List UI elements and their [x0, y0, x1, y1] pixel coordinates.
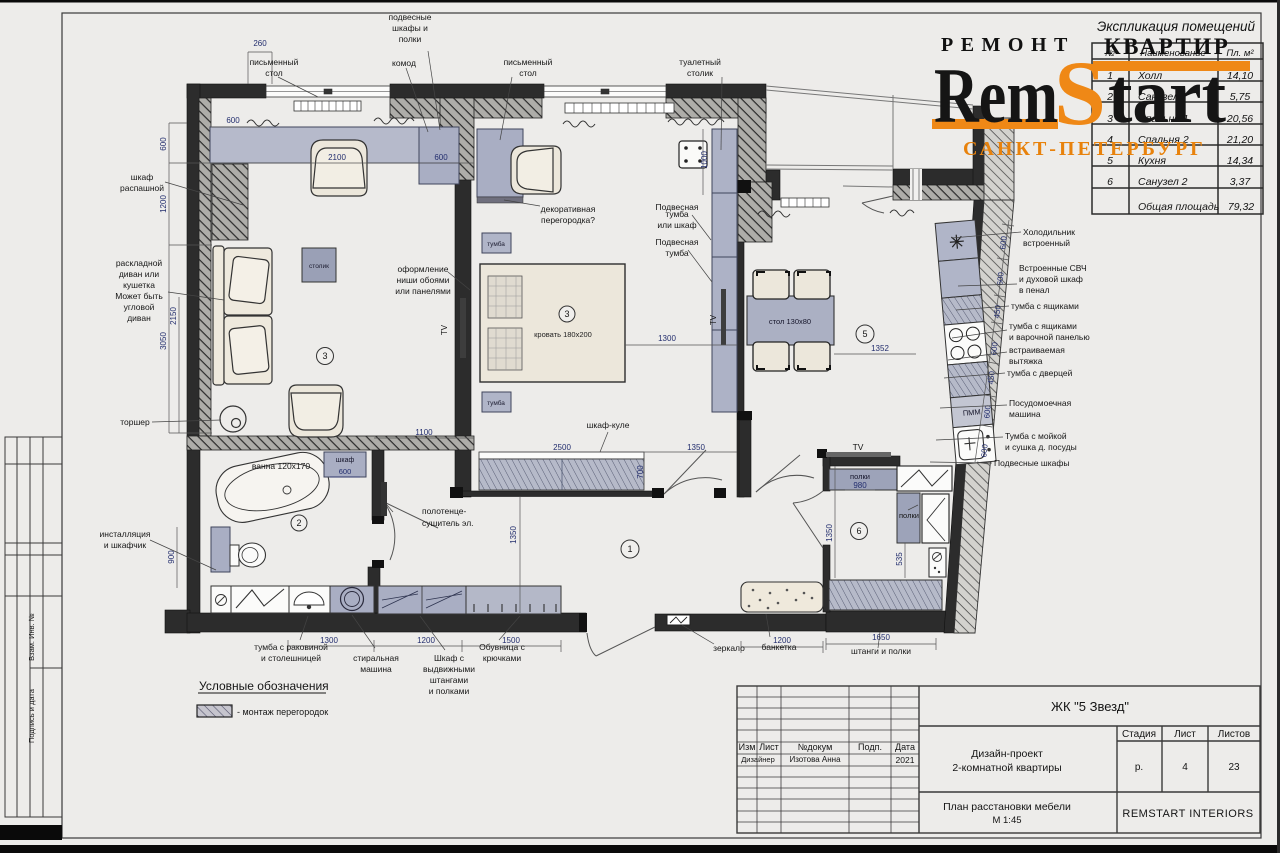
svg-text:вытяжка: вытяжка: [1009, 356, 1043, 366]
svg-text:5: 5: [862, 329, 867, 339]
svg-text:и полками: и полками: [429, 686, 470, 696]
svg-text:Условные обозначения: Условные обозначения: [199, 679, 329, 693]
svg-text:и сушка д. посуды: и сушка д. посуды: [1005, 442, 1077, 452]
svg-text:письменный: письменный: [250, 57, 299, 67]
svg-text:комод: комод: [392, 58, 416, 68]
svg-text:встраиваемая: встраиваемая: [1009, 345, 1065, 355]
svg-text:260: 260: [253, 39, 267, 48]
svg-text:Изотова Анна: Изотова Анна: [789, 755, 841, 764]
svg-text:600: 600: [979, 443, 989, 458]
svg-text:Обувница с: Обувница с: [479, 642, 525, 652]
svg-text:кровать 180х200: кровать 180х200: [534, 330, 592, 339]
svg-text:и столешницей: и столешницей: [261, 653, 321, 663]
svg-text:450: 450: [986, 370, 996, 385]
svg-text:Стадия: Стадия: [1122, 729, 1156, 740]
svg-text:Общая площадь: Общая площадь: [1138, 201, 1219, 213]
svg-text:700: 700: [636, 465, 645, 479]
svg-text:шкафы и: шкафы и: [392, 23, 428, 33]
svg-text:1100: 1100: [415, 428, 433, 437]
svg-text:2150: 2150: [169, 307, 178, 325]
svg-text:инсталляция: инсталляция: [100, 529, 151, 539]
svg-text:полотенце-: полотенце-: [422, 506, 466, 516]
svg-text:штангами: штангами: [430, 675, 469, 685]
svg-text:tart: tart: [1108, 52, 1226, 139]
svg-text:ванна 120х170: ванна 120х170: [252, 461, 311, 471]
svg-text:Подп.: Подп.: [858, 742, 882, 752]
svg-text:шкаф-куле: шкаф-куле: [587, 420, 630, 430]
svg-text:980: 980: [853, 481, 867, 490]
svg-text:1350: 1350: [825, 524, 834, 542]
svg-text:стол: стол: [265, 68, 283, 78]
svg-text:20,56: 20,56: [1226, 113, 1253, 125]
svg-text:сушитель эл.: сушитель эл.: [422, 518, 474, 528]
svg-text:600: 600: [982, 404, 992, 419]
svg-text:Экспликация помещений: Экспликация помещений: [1097, 19, 1256, 34]
svg-text:1200: 1200: [159, 195, 168, 213]
svg-text:1350: 1350: [509, 526, 518, 544]
svg-text:2021: 2021: [896, 755, 915, 765]
svg-text:или шкаф: или шкаф: [657, 220, 696, 230]
svg-text:встроенный: встроенный: [1023, 238, 1070, 248]
svg-text:штанги и полки: штанги и полки: [851, 646, 911, 656]
svg-text:и духовой шкаф: и духовой шкаф: [1019, 274, 1083, 284]
svg-text:зеркало: зеркало: [713, 643, 745, 653]
svg-text:диван или: диван или: [119, 269, 160, 279]
svg-text:600: 600: [159, 137, 168, 151]
svg-text:полки: полки: [850, 472, 870, 481]
svg-text:5,75: 5,75: [1230, 91, 1251, 103]
svg-text:Rem: Rem: [934, 52, 1058, 139]
svg-text:или панелями: или панелями: [395, 286, 451, 296]
svg-text:полки: полки: [899, 511, 919, 520]
svg-text:тумба: тумба: [665, 209, 689, 219]
svg-text:тумба: тумба: [665, 248, 689, 258]
svg-text:900: 900: [167, 550, 176, 564]
svg-text:стиральная: стиральная: [353, 653, 399, 663]
svg-text:диван: диван: [127, 313, 151, 323]
svg-text:тумба с ящиками: тумба с ящиками: [1009, 321, 1077, 331]
svg-text:1350: 1350: [687, 443, 705, 452]
svg-text:тумба: тумба: [487, 399, 505, 407]
svg-text:Посудомоечная: Посудомоечная: [1009, 398, 1072, 408]
svg-text:полки: полки: [399, 34, 422, 44]
svg-text:распашной: распашной: [120, 183, 164, 193]
svg-text:Подвесные шкафы: Подвесные шкафы: [994, 458, 1069, 468]
svg-text:1352: 1352: [871, 344, 889, 353]
svg-text:2: 2: [296, 518, 301, 528]
svg-text:1200: 1200: [417, 636, 435, 645]
svg-text:Лист: Лист: [759, 742, 779, 752]
svg-text:стол 130х80: стол 130х80: [769, 317, 811, 326]
svg-text:Шкаф с: Шкаф с: [434, 653, 465, 663]
svg-text:3050: 3050: [159, 332, 168, 350]
svg-text:торшер: торшер: [120, 417, 150, 427]
svg-text:Холодильник: Холодильник: [1023, 227, 1075, 237]
svg-text:оформление: оформление: [398, 264, 449, 274]
svg-text:и варочной панелью: и варочной панелью: [1009, 332, 1090, 342]
svg-text:тумба с раковиной: тумба с раковиной: [254, 642, 328, 652]
svg-text:3: 3: [564, 309, 569, 319]
svg-text:Встроенные СВЧ: Встроенные СВЧ: [1019, 263, 1087, 273]
svg-text:Дизайн-проект: Дизайн-проект: [971, 748, 1043, 760]
svg-text:кушетка: кушетка: [123, 280, 155, 290]
svg-text:тумба с дверцей: тумба с дверцей: [1007, 368, 1073, 378]
svg-text:Лист: Лист: [1174, 729, 1196, 740]
svg-text:тумба: тумба: [487, 240, 505, 248]
svg-text:TV: TV: [709, 314, 718, 325]
svg-text:Взам. Инв. №: Взам. Инв. №: [27, 613, 36, 661]
svg-text:600: 600: [226, 116, 240, 125]
svg-text:План расстановки мебели: План расстановки мебели: [943, 801, 1071, 813]
svg-text:столик: столик: [309, 263, 329, 270]
svg-text:6: 6: [1107, 176, 1113, 188]
svg-text:№докум: №докум: [798, 742, 833, 752]
svg-text:машина: машина: [1009, 409, 1041, 419]
svg-text:банкетка: банкетка: [762, 642, 797, 652]
svg-text:Подвесная: Подвесная: [655, 237, 698, 247]
svg-text:Пл. м²: Пл. м²: [1226, 48, 1254, 59]
svg-text:2500: 2500: [553, 443, 571, 452]
svg-text:TV: TV: [853, 442, 864, 452]
svg-text:1: 1: [627, 544, 632, 554]
svg-text:600: 600: [339, 467, 352, 476]
svg-text:6: 6: [856, 526, 861, 536]
svg-text:Санузел 2: Санузел 2: [1138, 176, 1188, 188]
svg-text:туалетный: туалетный: [679, 57, 721, 67]
svg-text:САНКТ-ПЕТЕРБУРГ: САНКТ-ПЕТЕРБУРГ: [963, 138, 1206, 160]
svg-text:1000: 1000: [700, 151, 709, 169]
svg-text:декоративная: декоративная: [541, 204, 596, 214]
svg-text:Дата: Дата: [895, 742, 915, 752]
svg-text:Листов: Листов: [1218, 729, 1251, 740]
svg-text:21,20: 21,20: [1226, 134, 1253, 146]
svg-text:600: 600: [998, 235, 1008, 250]
svg-text:535: 535: [895, 552, 904, 566]
svg-text:REMSTART INTERIORS: REMSTART INTERIORS: [1122, 808, 1253, 820]
svg-text:шкаф: шкаф: [131, 172, 153, 182]
svg-text:р.: р.: [1135, 762, 1143, 773]
svg-text:столик: столик: [687, 68, 713, 78]
svg-text:Может быть: Может быть: [115, 291, 163, 301]
svg-text:2-комнатной квартиры: 2-комнатной квартиры: [952, 762, 1061, 774]
svg-text:письменный: письменный: [504, 57, 553, 67]
svg-text:Подпись и дата: Подпись и дата: [27, 688, 36, 743]
svg-text:подвесные: подвесные: [388, 12, 431, 22]
svg-text:4: 4: [1182, 762, 1188, 773]
svg-text:- монтаж перегородок: - монтаж перегородок: [237, 707, 328, 717]
svg-text:TV: TV: [440, 324, 449, 335]
svg-text:крючками: крючками: [483, 653, 522, 663]
svg-text:и шкафчик: и шкафчик: [104, 540, 147, 550]
svg-text:ЖК "5 Звезд": ЖК "5 Звезд": [1051, 699, 1129, 714]
svg-text:перегородка?: перегородка?: [541, 215, 595, 225]
svg-text:шкаф: шкаф: [336, 457, 355, 464]
svg-text:ПММ: ПММ: [962, 407, 981, 418]
svg-text:раскладной: раскладной: [116, 258, 163, 268]
svg-text:23: 23: [1228, 762, 1240, 773]
svg-text:600: 600: [995, 271, 1005, 286]
svg-text:14,34: 14,34: [1227, 155, 1253, 167]
svg-text:2100: 2100: [328, 153, 346, 162]
svg-text:угловой: угловой: [124, 302, 155, 312]
svg-text:Тумба с мойкой: Тумба с мойкой: [1005, 431, 1067, 441]
svg-text:600: 600: [434, 153, 448, 162]
svg-text:3,37: 3,37: [1230, 176, 1252, 188]
svg-text:выдвижными: выдвижными: [423, 664, 475, 674]
svg-text:3: 3: [322, 351, 327, 361]
svg-text:Дизайнер: Дизайнер: [741, 755, 775, 764]
svg-text:стол: стол: [519, 68, 537, 78]
svg-text:М 1:45: М 1:45: [992, 815, 1021, 826]
svg-text:машина: машина: [360, 664, 392, 674]
svg-text:79,32: 79,32: [1228, 201, 1254, 213]
svg-text:в пенал: в пенал: [1019, 285, 1050, 295]
svg-text:ниши обоями: ниши обоями: [397, 275, 450, 285]
svg-text:Изм: Изм: [739, 742, 756, 752]
svg-text:S: S: [1054, 42, 1106, 144]
svg-text:1300: 1300: [658, 334, 676, 343]
svg-text:14,10: 14,10: [1227, 70, 1253, 82]
svg-text:1650: 1650: [872, 633, 890, 642]
svg-text:тумба с ящиками: тумба с ящиками: [1011, 301, 1079, 311]
